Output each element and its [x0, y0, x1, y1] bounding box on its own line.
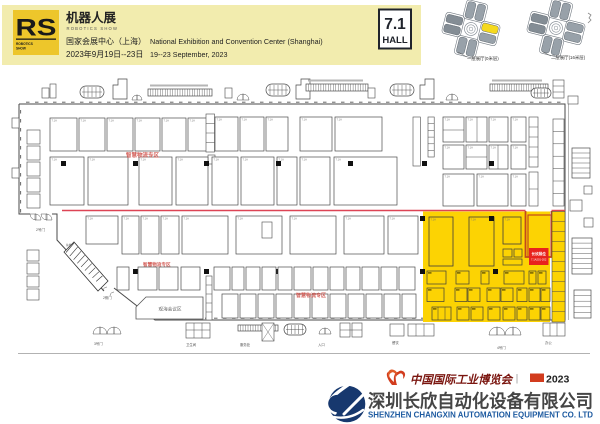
svg-text:7.1A: 7.1A [445, 175, 451, 179]
svg-text:2号门: 2号门 [36, 227, 45, 232]
svg-text:7.1A: 7.1A [52, 119, 58, 123]
svg-text:7.1A: 7.1A [513, 175, 519, 179]
svg-text:3号门: 3号门 [94, 341, 103, 346]
svg-text:National Exhibition and Conven: National Exhibition and Convention Cente… [150, 37, 323, 46]
svg-text:7.1A: 7.1A [164, 119, 170, 123]
svg-text:国家会展中心（上海）: 国家会展中心（上海） [66, 36, 146, 46]
svg-text:7.1A: 7.1A [337, 118, 343, 122]
svg-text:7.1A: 7.1A [238, 217, 244, 221]
svg-text:7.1A: 7.1A [109, 119, 115, 123]
svg-text:7.1A: 7.1A [178, 158, 184, 162]
svg-text:7.1A: 7.1A [163, 217, 169, 221]
svg-text:深圳长欣自动化设备有限公司: 深圳长欣自动化设备有限公司 [368, 391, 593, 412]
svg-text:HALL: HALL [382, 35, 408, 46]
svg-text:7.1A: 7.1A [243, 158, 249, 162]
svg-text:机器人展: 机器人展 [66, 10, 117, 25]
svg-text:7.1A: 7.1A [137, 119, 143, 123]
svg-text:7.1A: 7.1A [505, 218, 511, 222]
svg-text:4号门: 4号门 [497, 345, 506, 350]
svg-text:7.1A: 7.1A [302, 118, 308, 122]
svg-text:7.1A: 7.1A [431, 218, 437, 222]
svg-text:7.1A: 7.1A [124, 217, 130, 221]
svg-text:7.1A: 7.1A [513, 146, 519, 150]
svg-text:2023年9月19日--23日: 2023年9月19日--23日 [66, 49, 143, 59]
svg-text:7.1A: 7.1A [143, 217, 149, 221]
svg-text:服务处: 服务处 [240, 342, 251, 347]
svg-text:中国国际工业博览会: 中国国际工业博览会 [410, 374, 514, 387]
svg-text:7.1A: 7.1A [468, 146, 474, 150]
svg-text:餐饮: 餐饮 [392, 340, 399, 345]
svg-text:7.1A201-202: 7.1A201-202 [531, 258, 547, 262]
svg-text:2侧门: 2侧门 [103, 295, 112, 300]
svg-text:7.1A: 7.1A [242, 118, 248, 122]
svg-text:7.1A: 7.1A [302, 158, 308, 162]
svg-text:智慧物流专区: 智慧物流专区 [126, 151, 160, 159]
svg-text:7.1A: 7.1A [81, 119, 87, 123]
svg-text:7.1A: 7.1A [491, 118, 497, 122]
svg-text:7.1: 7.1 [384, 16, 406, 33]
svg-text:7.1A: 7.1A [336, 158, 342, 162]
svg-text:7.1A: 7.1A [445, 146, 451, 150]
svg-text:7.1A: 7.1A [214, 158, 220, 162]
svg-text:7.1A: 7.1A [184, 217, 190, 221]
svg-text:SHOW: SHOW [16, 47, 26, 51]
svg-text:7.1A: 7.1A [346, 217, 352, 221]
svg-text:7.1A: 7.1A [390, 217, 396, 221]
svg-text:7.1A: 7.1A [217, 118, 223, 122]
svg-text:7.1A: 7.1A [471, 218, 477, 222]
svg-text:7.1A: 7.1A [491, 146, 497, 150]
svg-text:7.1A: 7.1A [52, 158, 58, 162]
svg-text:扶梯: 扶梯 [66, 243, 72, 247]
svg-text:ROBOTICS: ROBOTICS [16, 42, 33, 46]
svg-text:7.1A: 7.1A [190, 119, 196, 123]
svg-text:一层展厅(0米层): 一层展厅(0米层) [467, 55, 499, 62]
svg-text:办公: 办公 [545, 340, 552, 345]
svg-text:卫生间: 卫生间 [186, 342, 197, 347]
svg-text:观海会议区: 观海会议区 [159, 306, 182, 313]
svg-text:7.1A: 7.1A [268, 118, 274, 122]
svg-text:RS: RS [16, 15, 57, 42]
svg-text:入口: 入口 [318, 343, 325, 347]
svg-text:7.1A: 7.1A [445, 118, 451, 122]
svg-text:ROBOTICS SHOW: ROBOTICS SHOW [67, 26, 119, 31]
svg-text:7.1A: 7.1A [468, 118, 474, 122]
svg-text:二层展厅(16米层): 二层展厅(16米层) [551, 54, 586, 61]
svg-text:7.1A: 7.1A [513, 118, 519, 122]
svg-text:SHENZHEN CHANGXIN AUTOMATION E: SHENZHEN CHANGXIN AUTOMATION EQUIPMENT C… [368, 411, 593, 420]
svg-text:2023: 2023 [546, 374, 570, 386]
svg-text:19--23 September, 2023: 19--23 September, 2023 [150, 50, 228, 59]
svg-text:7.1A: 7.1A [292, 217, 298, 221]
svg-text:智慧物流专区: 智慧物流专区 [296, 292, 326, 299]
svg-text:7.1A: 7.1A [479, 175, 485, 179]
svg-text:7.1A: 7.1A [90, 158, 96, 162]
svg-text:7.1A: 7.1A [88, 217, 94, 221]
svg-text:长欣展位: 长欣展位 [532, 251, 547, 256]
